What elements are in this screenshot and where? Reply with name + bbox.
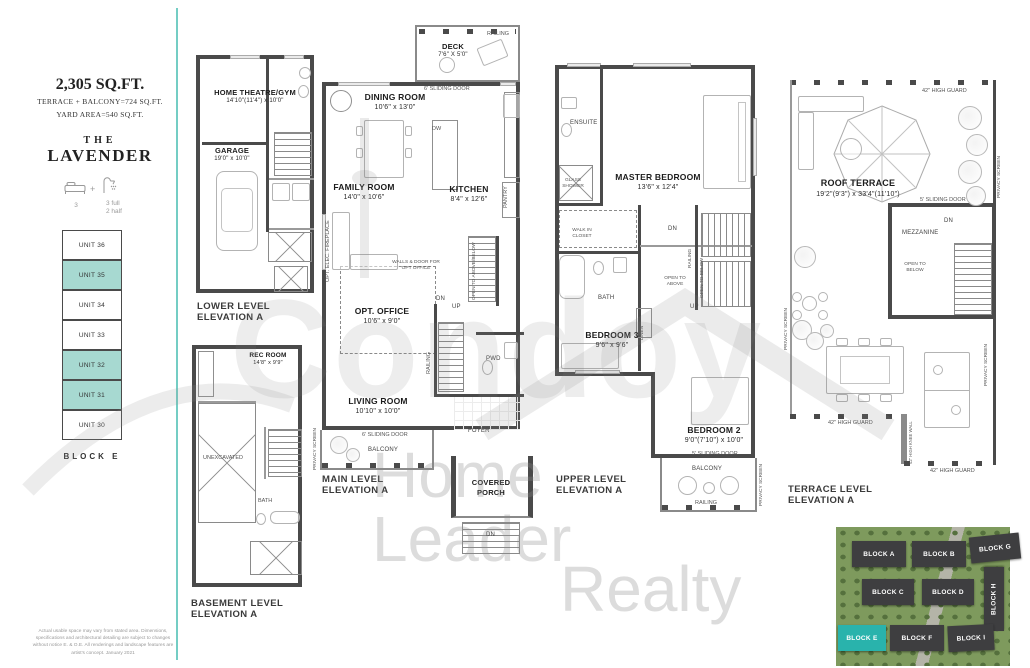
dw-label: DW	[432, 126, 441, 132]
unit-stack: UNIT 36 UNIT 35 UNIT 34 UNIT 33 UNIT 32 …	[62, 230, 122, 442]
fireplace-label: OPT. ELEC. FIREPLACE	[325, 218, 331, 282]
tub	[270, 511, 300, 524]
high-guard-label: 42" HIGH GUARD	[922, 88, 967, 94]
sqft-title: 2,305 SQ.FT.	[30, 76, 170, 94]
basement-plan	[192, 345, 302, 587]
toilet	[593, 261, 604, 275]
window	[753, 118, 757, 176]
glass-shower-label: GLASS SHOWER	[560, 178, 586, 190]
terrace-balcony-line: TERRACE + BALCONY=724 SQ.FT.	[26, 97, 174, 106]
shower-icon	[100, 176, 120, 201]
chair	[880, 338, 892, 346]
kitchen-room: KITCHEN 8'4" x 12'6"	[436, 184, 502, 204]
chair	[792, 292, 802, 302]
railing-label: RAILING	[688, 228, 693, 268]
home-theatre-room: HOME THEATRE/GYM 14'10"(11'4") x 10'0"	[205, 88, 305, 106]
level-elevation: ELEVATION A	[191, 609, 283, 620]
dn-label: DN	[436, 296, 445, 302]
bath-label: BATH	[598, 295, 614, 301]
family-room: FAMILY ROOM 14'0" x 10'6"	[326, 182, 402, 202]
baths-full: 3 full	[106, 200, 120, 207]
coffee-table	[840, 138, 862, 160]
plus-sign: +	[90, 184, 95, 194]
level-elevation: ELEVATION A	[197, 312, 270, 323]
lower-level-label: LOWER LEVEL ELEVATION A	[197, 301, 270, 324]
site-block-d: BLOCK D	[922, 579, 974, 605]
chair	[836, 338, 848, 346]
sink	[299, 67, 311, 79]
site-block-g: BLOCK G	[969, 532, 1021, 563]
site-block-c: BLOCK C	[862, 579, 914, 605]
block-label: BLOCK E	[47, 452, 137, 461]
open-to-above-below-label: OPEN TO ABOVE/BELOW	[472, 244, 477, 300]
room-name: BEDROOM 2	[668, 425, 760, 436]
room-name: DINING ROOM	[350, 92, 440, 103]
chair	[818, 292, 828, 302]
unit-33: UNIT 33	[62, 320, 122, 350]
wall	[651, 372, 655, 454]
dining-room: DINING ROOM 10'6" x 13'0"	[350, 92, 440, 112]
planter	[330, 436, 348, 454]
ensuite-label: ENSUITE	[570, 120, 597, 126]
room-dims: 7'6" X 5'0"	[418, 52, 488, 60]
main-level-plan	[322, 82, 520, 430]
basement-level-label: BASEMENT LEVEL ELEVATION A	[191, 598, 283, 621]
site-plan: BLOCK A BLOCK B BLOCK G BLOCK C BLOCK D …	[836, 527, 1010, 666]
room-dims: 14'8" x 9'9"	[238, 360, 298, 367]
room-name: REC ROOM	[238, 352, 298, 360]
room-dims: 19'0" x 10'0"	[204, 156, 260, 164]
room-name: OPT. OFFICE	[342, 306, 422, 317]
plan-name-prefix: THE	[30, 135, 170, 146]
beds-count: 3	[68, 202, 84, 209]
wall-line	[264, 427, 266, 479]
room-name: ROOF TERRACE	[808, 178, 908, 190]
watermark-realty: Realty	[560, 552, 741, 626]
tree	[794, 246, 816, 268]
room-dims: 10'6" x 9'0"	[342, 317, 422, 326]
dn-label: DN	[944, 218, 953, 224]
up-label: UP	[690, 304, 699, 310]
chair	[818, 310, 828, 320]
mezzanine-stairs	[954, 243, 992, 315]
teal-divider	[176, 8, 178, 660]
site-block-i: BLOCK I	[947, 624, 994, 652]
wall	[555, 203, 603, 206]
balcony-chair	[678, 476, 697, 495]
wall	[434, 304, 437, 396]
toilet	[482, 360, 493, 375]
terrace-left-wall	[790, 80, 792, 418]
tree	[958, 106, 982, 130]
site-block-e: BLOCK E	[838, 625, 886, 651]
guard-railing	[790, 414, 904, 419]
room-name: BEDROOM 3	[572, 330, 652, 341]
room-dims: 9'6" x 9'6"	[572, 341, 652, 350]
unexcavated-x-small	[250, 541, 302, 575]
window	[230, 55, 260, 59]
unexcavated-x	[198, 403, 256, 523]
site-block-b: BLOCK B	[912, 541, 966, 567]
room-name: HOME THEATRE/GYM	[205, 88, 305, 98]
tree	[820, 324, 834, 338]
room-dims: 9'0"(7'10") x 10'0"	[668, 436, 760, 445]
kitchenette-counter	[198, 351, 214, 397]
unit-36: UNIT 36	[62, 230, 122, 260]
window	[338, 82, 390, 86]
unit-31: UNIT 31	[62, 380, 122, 410]
window	[567, 63, 601, 67]
privacy-screen-label: PRIVACY SCREEN	[984, 338, 989, 386]
high-guard-label: 42" HIGH GUARD	[930, 468, 975, 474]
tree	[966, 186, 986, 206]
room-dims: 8'4" x 12'6"	[436, 195, 502, 204]
wall	[555, 251, 640, 254]
stairs	[701, 213, 751, 257]
chair	[858, 338, 870, 346]
bedroom2-room: BEDROOM 2 9'0"(7'10") x 10'0"	[668, 425, 760, 445]
ceiling-fan	[330, 90, 352, 112]
room-dims: 14'10"(11'4") x 10'0"	[205, 98, 305, 106]
room-dims: 14'0" x 10'6"	[326, 193, 402, 202]
privacy-screen-label: PRIVACY SCREEN	[784, 298, 789, 350]
site-block-h: BLOCK H	[984, 567, 1004, 631]
level-title: UPPER LEVEL	[556, 474, 626, 485]
unit-30: UNIT 30	[62, 410, 122, 440]
window	[500, 82, 516, 86]
chair	[356, 126, 363, 136]
railing-label: RAILING	[487, 31, 509, 37]
washer	[272, 183, 290, 201]
porch-steps	[462, 522, 520, 554]
wall	[202, 142, 266, 145]
game-table	[924, 352, 970, 428]
wall-line	[269, 178, 314, 180]
bedroom3-room: BEDROOM 3 9'6" x 9'6"	[572, 330, 652, 350]
wall	[476, 332, 524, 335]
disclaimer-text: Actual usable space may vary from stated…	[28, 628, 178, 657]
garage-room: GARAGE 19'0" x 10'0"	[204, 146, 260, 164]
sliding-door-label: 5' SLIDING DOOR	[692, 451, 738, 457]
rec-room: REC ROOM 14'8" x 9'9"	[238, 352, 298, 368]
room-name: KITCHEN	[436, 184, 502, 195]
chair	[858, 394, 870, 402]
stairs	[701, 261, 751, 307]
tree	[966, 134, 988, 156]
railing-label: RAILING	[695, 500, 717, 506]
toilet	[256, 513, 266, 525]
privacy-screen-label: PRIVACY SCREEN	[997, 146, 1002, 198]
level-elevation: ELEVATION A	[556, 485, 626, 496]
sliding-door-label: 5' SLIDING DOOR	[920, 197, 966, 203]
guard-railing	[904, 461, 996, 466]
sofa	[332, 212, 350, 270]
chair	[405, 148, 412, 158]
dining-table	[364, 120, 404, 178]
wall	[695, 205, 698, 310]
level-elevation: ELEVATION A	[322, 485, 389, 496]
mezzanine-label: MEZZANINE	[902, 230, 938, 236]
bedroom2-bed	[691, 377, 749, 425]
open-to-below-label: OPEN TO BELOW	[700, 256, 705, 298]
balcony-label: BALCONY	[692, 466, 722, 472]
room-dims: 19'2"(9'3") x 33'4"(11'10")	[808, 190, 908, 199]
shaft-x	[268, 232, 312, 262]
balcony-label: BALCONY	[368, 447, 398, 453]
dn-label: DN	[668, 226, 677, 232]
living-room: LIVING ROOM 10'10" x 10'0"	[336, 396, 420, 416]
room-name: DECK	[418, 42, 488, 52]
privacy-screen-label: PRIVACY SCREEN	[313, 430, 318, 470]
outdoor-sofa	[798, 96, 864, 112]
shaft-x	[274, 266, 308, 292]
outdoor-dining-table	[826, 346, 904, 394]
foyer-floor	[454, 397, 520, 430]
up-label: UP	[452, 304, 461, 310]
room-dims: 10'10" x 10'0"	[336, 407, 420, 416]
level-title: TERRACE LEVEL	[788, 484, 872, 495]
stairs	[438, 322, 464, 392]
unexcavated-label: UNEXCAVATED	[203, 455, 243, 461]
chair	[836, 394, 848, 402]
knee-wall-label: 42" HIGH KNEE WALL	[908, 418, 913, 464]
sink	[613, 257, 627, 273]
roof-terrace-room: ROOF TERRACE 19'2"(9'3") x 33'4"(11'10")	[808, 178, 908, 199]
porch-line2: PORCH	[458, 488, 524, 498]
stairs	[268, 429, 302, 477]
chair	[405, 126, 412, 136]
window	[633, 63, 691, 67]
open-to-above-label: OPEN TO ABOVE	[662, 276, 688, 288]
wall	[496, 236, 499, 306]
sliding-door-label: 6' SLIDING DOOR	[362, 432, 408, 438]
covered-porch-label: COVERED PORCH	[458, 478, 524, 498]
room-name: LIVING ROOM	[336, 396, 420, 407]
mezzanine-box	[888, 203, 996, 319]
outdoor-sofa	[798, 112, 814, 170]
opt-office-room: OPT. OFFICE 10'6" x 9'0"	[342, 306, 422, 326]
knee-wall	[901, 414, 907, 464]
unit-35: UNIT 35	[62, 260, 122, 290]
porch-line1: COVERED	[458, 478, 524, 488]
terrace-level-plan	[790, 80, 996, 470]
fridge	[503, 94, 520, 118]
pantry-label: PANTRY	[503, 182, 509, 208]
plan-name: LAVENDER	[26, 146, 174, 166]
sink	[504, 342, 518, 359]
upper-level-label: UPPER LEVEL ELEVATION A	[556, 474, 626, 497]
car	[216, 171, 258, 251]
unit-32: UNIT 32	[62, 350, 122, 380]
chair	[792, 310, 802, 320]
balcony-chair	[720, 476, 739, 495]
high-guard-label: 42" HIGH GUARD	[828, 420, 873, 426]
chair	[880, 394, 892, 402]
main-level-label: MAIN LEVEL ELEVATION A	[322, 474, 389, 497]
room-name: MASTER BEDROOM	[608, 172, 708, 183]
planter	[346, 448, 360, 462]
deck-room: DECK 7'6" X 5'0"	[418, 42, 488, 60]
master-bed	[703, 95, 751, 189]
pwd-label: PWD	[486, 356, 501, 362]
dn-label: DN	[486, 532, 495, 538]
tub	[559, 255, 585, 299]
railing-label: RAILING	[426, 330, 432, 374]
room-name: FAMILY ROOM	[326, 182, 402, 193]
sink	[561, 97, 577, 109]
unit-34: UNIT 34	[62, 290, 122, 320]
foyer-label: FOYER	[468, 428, 490, 434]
terrace-level-label: TERRACE LEVEL ELEVATION A	[788, 484, 872, 507]
site-block-a: BLOCK A	[852, 541, 906, 567]
balcony-railing	[322, 463, 432, 468]
bistro-table	[802, 296, 817, 311]
room-name: GARAGE	[204, 146, 260, 156]
level-title: BASEMENT LEVEL	[191, 598, 283, 609]
chair	[356, 148, 363, 158]
tree	[958, 160, 982, 184]
window	[575, 370, 620, 374]
office-note: WALLS & DOOR FOR OPT OFFICE	[390, 260, 442, 272]
bed-icon	[64, 180, 86, 200]
room-dims: 13'6" x 12'4"	[608, 183, 708, 192]
dryer	[292, 183, 310, 201]
level-title: MAIN LEVEL	[322, 474, 389, 485]
walk-in-closet-label: WALK IN CLOSET	[568, 228, 596, 240]
wall-line	[269, 228, 314, 230]
privacy-screen-label: PRIVACY SCREEN	[759, 460, 764, 506]
floorplan-sheet: 2,305 SQ.FT. TERRACE + BALCONY=724 SQ.FT…	[0, 0, 1030, 668]
wall	[266, 59, 269, 232]
master-bedroom-room: MASTER BEDROOM 13'6" x 12'4"	[608, 172, 708, 192]
baths-half: 2 half	[106, 208, 122, 215]
yard-area-line: YARD AREA=540 SQ.FT.	[26, 110, 174, 119]
room-dims: 10'6" x 13'0"	[350, 103, 440, 112]
balcony-table	[703, 482, 715, 494]
open-to-below-label: OPEN TO BELOW	[898, 262, 932, 274]
level-title: LOWER LEVEL	[197, 301, 270, 312]
bath-label: BATH	[258, 498, 272, 504]
wall	[600, 65, 603, 205]
level-elevation: ELEVATION A	[788, 495, 872, 506]
window	[284, 55, 304, 59]
guard-railing	[790, 80, 996, 85]
stairs	[274, 132, 312, 176]
site-block-f: BLOCK F	[890, 625, 944, 651]
